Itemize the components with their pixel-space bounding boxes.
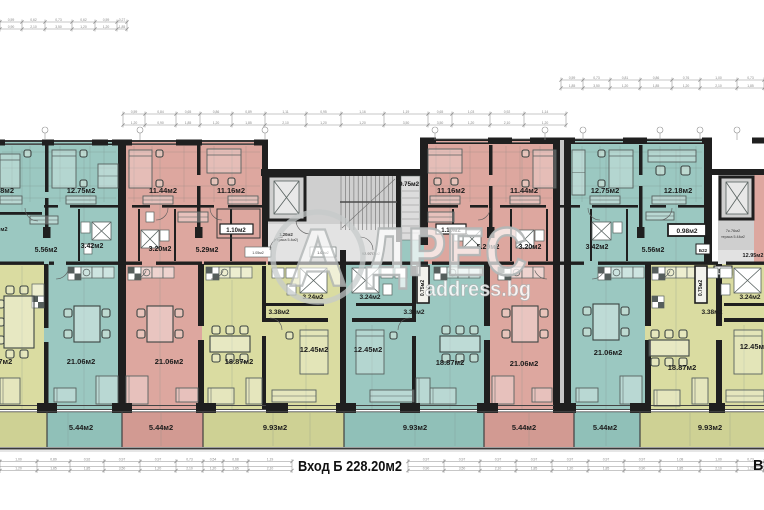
svg-text:1,19: 1,19 [267, 457, 274, 461]
svg-text:1,20: 1,20 [213, 121, 220, 125]
svg-text:21.06м2: 21.06м2 [510, 359, 539, 368]
svg-text:21.06м2: 21.06м2 [155, 357, 184, 366]
svg-text:3,50: 3,50 [403, 121, 410, 125]
svg-text:0,97: 0,97 [639, 457, 646, 461]
svg-text:Вход Б 228.20м2: Вход Б 228.20м2 [298, 459, 402, 475]
svg-text:0,90: 0,90 [639, 466, 646, 470]
svg-text:0,54: 0,54 [210, 457, 217, 461]
svg-text:0,90: 0,90 [423, 466, 430, 470]
svg-text:1,20: 1,20 [359, 121, 366, 125]
svg-text:1,85: 1,85 [677, 466, 684, 470]
svg-text:2,10: 2,10 [715, 84, 722, 88]
svg-text:1,85: 1,85 [603, 466, 610, 470]
svg-text:м2: м2 [0, 227, 7, 233]
svg-text:9.75м2: 9.75м2 [399, 181, 420, 188]
svg-text:0,97: 0,97 [603, 457, 610, 461]
svg-text:0,97: 0,97 [119, 457, 126, 461]
svg-text:1,85: 1,85 [653, 84, 660, 88]
svg-text:11.16м2: 11.16м2 [217, 186, 245, 195]
svg-text:1,00: 1,00 [15, 457, 22, 461]
svg-text:11.16м2: 11.16м2 [437, 186, 465, 195]
svg-text:2,10: 2,10 [495, 466, 502, 470]
svg-text:0,59: 0,59 [569, 76, 576, 80]
svg-text:12.18м2: 12.18м2 [664, 186, 693, 195]
svg-text:1,85: 1,85 [119, 25, 126, 29]
svg-text:0,59: 0,59 [131, 110, 138, 114]
svg-text:0,90: 0,90 [157, 121, 164, 125]
svg-text:18.87м2: 18.87м2 [668, 363, 697, 372]
svg-text:0,89: 0,89 [50, 457, 57, 461]
svg-text:9.93м2: 9.93м2 [403, 423, 427, 432]
svg-text:7к.76м2: 7к.76м2 [726, 228, 741, 233]
svg-text:1,85: 1,85 [569, 84, 576, 88]
svg-text:2,10: 2,10 [30, 25, 37, 29]
svg-text:5.44м2: 5.44м2 [512, 423, 536, 432]
svg-text:12.45м2: 12.45м2 [300, 345, 329, 354]
svg-text:тераса 5.44м2: тераса 5.44м2 [721, 235, 745, 239]
svg-text:2,10: 2,10 [715, 466, 722, 470]
svg-text:3,50: 3,50 [55, 25, 62, 29]
svg-text:0,97: 0,97 [155, 457, 162, 461]
svg-text:3.38м2: 3.38м2 [701, 309, 722, 316]
svg-text:1,20: 1,20 [683, 84, 690, 88]
svg-text:0,81: 0,81 [622, 76, 629, 80]
svg-text:1.05м2: 1.05м2 [252, 251, 263, 255]
svg-text:1,85: 1,85 [185, 121, 192, 125]
svg-text:0,97: 0,97 [423, 457, 430, 461]
svg-text:1,20: 1,20 [320, 121, 327, 125]
svg-text:18.87м2: 18.87м2 [436, 358, 465, 367]
svg-text:0,95: 0,95 [320, 110, 327, 114]
svg-text:address.bg: address.bg [425, 278, 531, 301]
svg-text:1,14: 1,14 [542, 110, 549, 114]
svg-text:0,92: 0,92 [84, 457, 91, 461]
svg-text:0,62: 0,62 [30, 18, 37, 22]
svg-text:1,20: 1,20 [542, 121, 549, 125]
svg-text:1,00: 1,00 [715, 457, 722, 461]
svg-text:21.06м2: 21.06м2 [594, 348, 623, 357]
svg-text:3.24м2: 3.24м2 [739, 294, 760, 301]
svg-text:0,97: 0,97 [567, 457, 574, 461]
svg-text:0,86: 0,86 [213, 110, 220, 114]
svg-text:5.56м2: 5.56м2 [35, 247, 58, 254]
svg-text:1,16: 1,16 [359, 110, 366, 114]
svg-text:18.87м2: 18.87м2 [0, 357, 12, 366]
svg-text:1,08: 1,08 [677, 457, 684, 461]
svg-text:11.44м2: 11.44м2 [510, 186, 538, 195]
svg-text:2,10: 2,10 [186, 466, 193, 470]
svg-text:5.29м2: 5.29м2 [196, 247, 219, 254]
svg-text:0,76: 0,76 [683, 76, 690, 80]
svg-text:3.38м2: 3.38м2 [403, 309, 424, 316]
svg-text:0,65: 0,65 [437, 110, 444, 114]
svg-text:1,20: 1,20 [622, 84, 629, 88]
svg-text:0,97: 0,97 [495, 457, 502, 461]
svg-text:1,11: 1,11 [282, 110, 288, 114]
svg-text:0,92: 0,92 [504, 110, 511, 114]
svg-text:Б22: Б22 [699, 248, 708, 253]
svg-text:0,89: 0,89 [245, 110, 252, 114]
svg-text:1,20: 1,20 [567, 466, 574, 470]
svg-text:1,85: 1,85 [747, 84, 754, 88]
svg-text:0.75м2: 0.75м2 [698, 280, 704, 296]
svg-text:18.87м2: 18.87м2 [225, 357, 254, 366]
svg-text:0,59: 0,59 [8, 18, 15, 22]
svg-text:0,73: 0,73 [593, 76, 600, 80]
svg-text:3.42м2: 3.42м2 [586, 244, 609, 251]
svg-text:11.44м2: 11.44м2 [149, 186, 177, 195]
svg-text:0,86: 0,86 [653, 76, 660, 80]
svg-text:0,73: 0,73 [55, 18, 62, 22]
svg-text:0,68: 0,68 [232, 457, 239, 461]
svg-text:0,97: 0,97 [459, 457, 466, 461]
svg-text:12.95м2: 12.95м2 [743, 253, 764, 259]
svg-text:9.93м2: 9.93м2 [263, 423, 287, 432]
svg-text:1,85: 1,85 [531, 466, 538, 470]
svg-text:1,20: 1,20 [15, 466, 22, 470]
svg-text:18м2: 18м2 [0, 186, 14, 195]
svg-text:12.75м2: 12.75м2 [591, 186, 620, 195]
svg-text:12.45м2: 12.45м2 [354, 345, 383, 354]
svg-text:1,00: 1,00 [715, 76, 722, 80]
svg-text:1,20: 1,20 [468, 121, 475, 125]
svg-text:1,85: 1,85 [50, 466, 57, 470]
svg-text:0,73: 0,73 [747, 76, 754, 80]
svg-text:0,59: 0,59 [103, 18, 110, 22]
svg-text:3,50: 3,50 [459, 466, 466, 470]
svg-text:9.93м2: 9.93м2 [698, 423, 722, 432]
svg-text:5.44м2: 5.44м2 [69, 423, 93, 432]
svg-text:2,10: 2,10 [267, 466, 274, 470]
svg-text:3,50: 3,50 [119, 466, 126, 470]
svg-text:1,20: 1,20 [155, 466, 162, 470]
svg-text:1,85: 1,85 [232, 466, 239, 470]
svg-text:Вх: Вх [753, 458, 764, 474]
svg-text:0,27: 0,27 [119, 18, 126, 22]
svg-text:1.10м2: 1.10м2 [226, 228, 246, 234]
svg-text:1,20: 1,20 [131, 121, 138, 125]
svg-text:1,20: 1,20 [103, 25, 110, 29]
svg-text:3,50: 3,50 [593, 84, 600, 88]
svg-text:3.38м2: 3.38м2 [268, 309, 289, 316]
svg-text:1,20: 1,20 [210, 466, 217, 470]
svg-text:1,03: 1,03 [468, 110, 475, 114]
svg-text:12.45м2: 12.45м2 [740, 342, 764, 351]
svg-text:0.98м2: 0.98м2 [676, 228, 697, 235]
svg-text:0,73: 0,73 [186, 457, 193, 461]
svg-text:1,85: 1,85 [84, 466, 91, 470]
svg-text:5.44м2: 5.44м2 [149, 423, 173, 432]
svg-text:21.06м2: 21.06м2 [67, 357, 96, 366]
svg-text:3,50: 3,50 [437, 121, 444, 125]
svg-text:1,20: 1,20 [80, 25, 87, 29]
svg-text:1,85: 1,85 [245, 121, 252, 125]
svg-text:3.20м2: 3.20м2 [149, 246, 172, 253]
svg-text:0,90: 0,90 [8, 25, 15, 29]
svg-text:3.42м2: 3.42м2 [81, 243, 104, 250]
svg-text:0,97: 0,97 [531, 457, 538, 461]
svg-text:5.44м2: 5.44м2 [593, 423, 617, 432]
svg-text:3.24м2: 3.24м2 [359, 294, 380, 301]
svg-text:12.75м2: 12.75м2 [67, 186, 96, 195]
svg-text:А: А [288, 213, 347, 304]
svg-text:2,10: 2,10 [282, 121, 289, 125]
svg-text:5.56м2: 5.56м2 [642, 247, 665, 254]
svg-text:0,84: 0,84 [157, 110, 164, 114]
svg-text:2,10: 2,10 [504, 121, 511, 125]
svg-text:0,62: 0,62 [80, 18, 87, 22]
svg-text:0,65: 0,65 [185, 110, 192, 114]
svg-text:1,19: 1,19 [403, 110, 410, 114]
